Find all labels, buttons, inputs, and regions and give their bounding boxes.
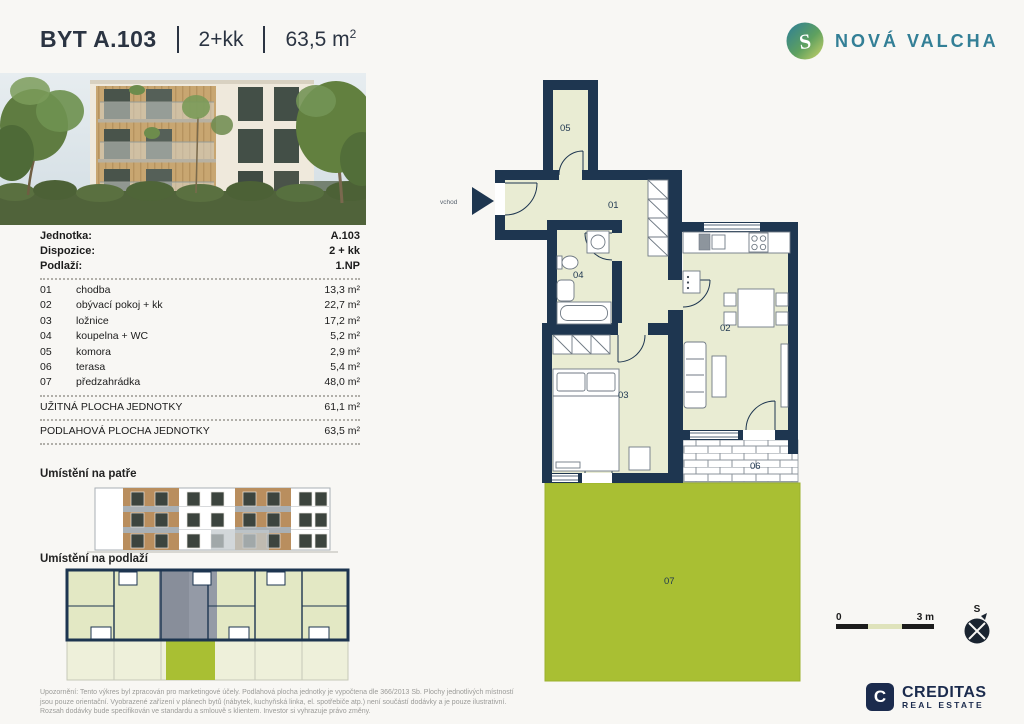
unit-title: BYT A.103 [40,26,157,53]
svg-text:S: S [974,604,981,615]
label-room-01: 01 [608,200,619,211]
dotted-divider [40,395,360,397]
floor-overview [63,566,352,684]
hedge [0,180,366,225]
unit-highlight [211,530,269,550]
dotted-divider [40,278,360,280]
unit-layout: 2+kk [199,28,244,52]
room-row: 06terasa5,4 m² [40,360,360,375]
disclaimer-line: Upozornění: Tento výkres byl zpracován p… [40,688,555,698]
room-row: 03ložnice17,2 m² [40,314,360,329]
info-row: Podlaží:1.NP [40,259,360,274]
header: BYT A.103 2+kk 63,5 m2 [40,26,356,53]
total-row: PODLAHOVÁ PLOCHA JEDNOTKY63,5 m² [40,424,360,439]
info-row: Jednotka:A.103 [40,229,360,244]
label-room-05: 05 [560,123,571,134]
label-room-04: 04 [573,270,584,281]
label-room-03: 03 [618,390,629,401]
separator [263,26,265,53]
disclaimer-line: jsou pouze orientační. Vyobrazené zaříze… [40,698,555,708]
building-elevation [85,484,340,556]
entrance-label: vchod [440,199,458,206]
terrace-area [683,440,798,482]
creditas-name: CREDITAS [902,685,987,700]
info-row: Dispozice:2 + kk [40,244,360,259]
label-room-07: 07 [664,576,675,587]
room-row: 04koupelna + WC5,2 m² [40,329,360,344]
nova-valcha-icon: S [786,22,824,60]
scale-start: 0 [836,612,842,623]
separator [177,26,179,53]
entrance-arrow-icon [472,187,494,215]
brand-logo: S NOVÁ VALCHA [786,22,999,60]
brand-name: NOVÁ VALCHA [835,31,999,52]
unit-info-table: Jednotka:A.103 Dispozice:2 + kk Podlaží:… [40,229,360,448]
disclaimer: Upozornění: Tento výkres byl zpracován p… [40,688,555,717]
room-row: 07předzahrádka48,0 m² [40,375,360,390]
garden-highlight [166,640,215,680]
entrance-marker: vchod [440,187,494,215]
room-row: 01chodba13,3 m² [40,283,360,298]
label-room-06: 06 [750,461,761,472]
dotted-divider [40,443,360,445]
total-row: UŽITNÁ PLOCHA JEDNOTKY61,1 m² [40,400,360,415]
section-level-location: Umístění na podlaží [40,553,148,565]
unit-area: 63,5 m2 [285,27,356,52]
floor-plan: vchod 01 02 03 04 05 06 07 [420,75,840,695]
scale-bar: 0 3 m [836,612,934,629]
creditas-logo: C CREDITAS REAL ESTATE [866,683,987,711]
label-room-02: 02 [720,323,731,334]
disclaimer-line: Rozsah dodávky bude specifikován ve stan… [40,707,555,717]
flyer-page: BYT A.103 2+kk 63,5 m2 S NOVÁ VALCHA [0,0,1024,724]
building-photo [0,73,366,225]
creditas-subtitle: REAL ESTATE [902,700,987,710]
compass-icon: S [955,598,999,650]
room-row: 05komora2,9 m² [40,345,360,360]
creditas-icon: C [866,683,894,711]
room-row: 02obývací pokoj + kk22,7 m² [40,298,360,313]
dotted-divider [40,419,360,421]
section-floor-location: Umístění na patře [40,468,137,480]
scale-end: 3 m [917,612,934,623]
